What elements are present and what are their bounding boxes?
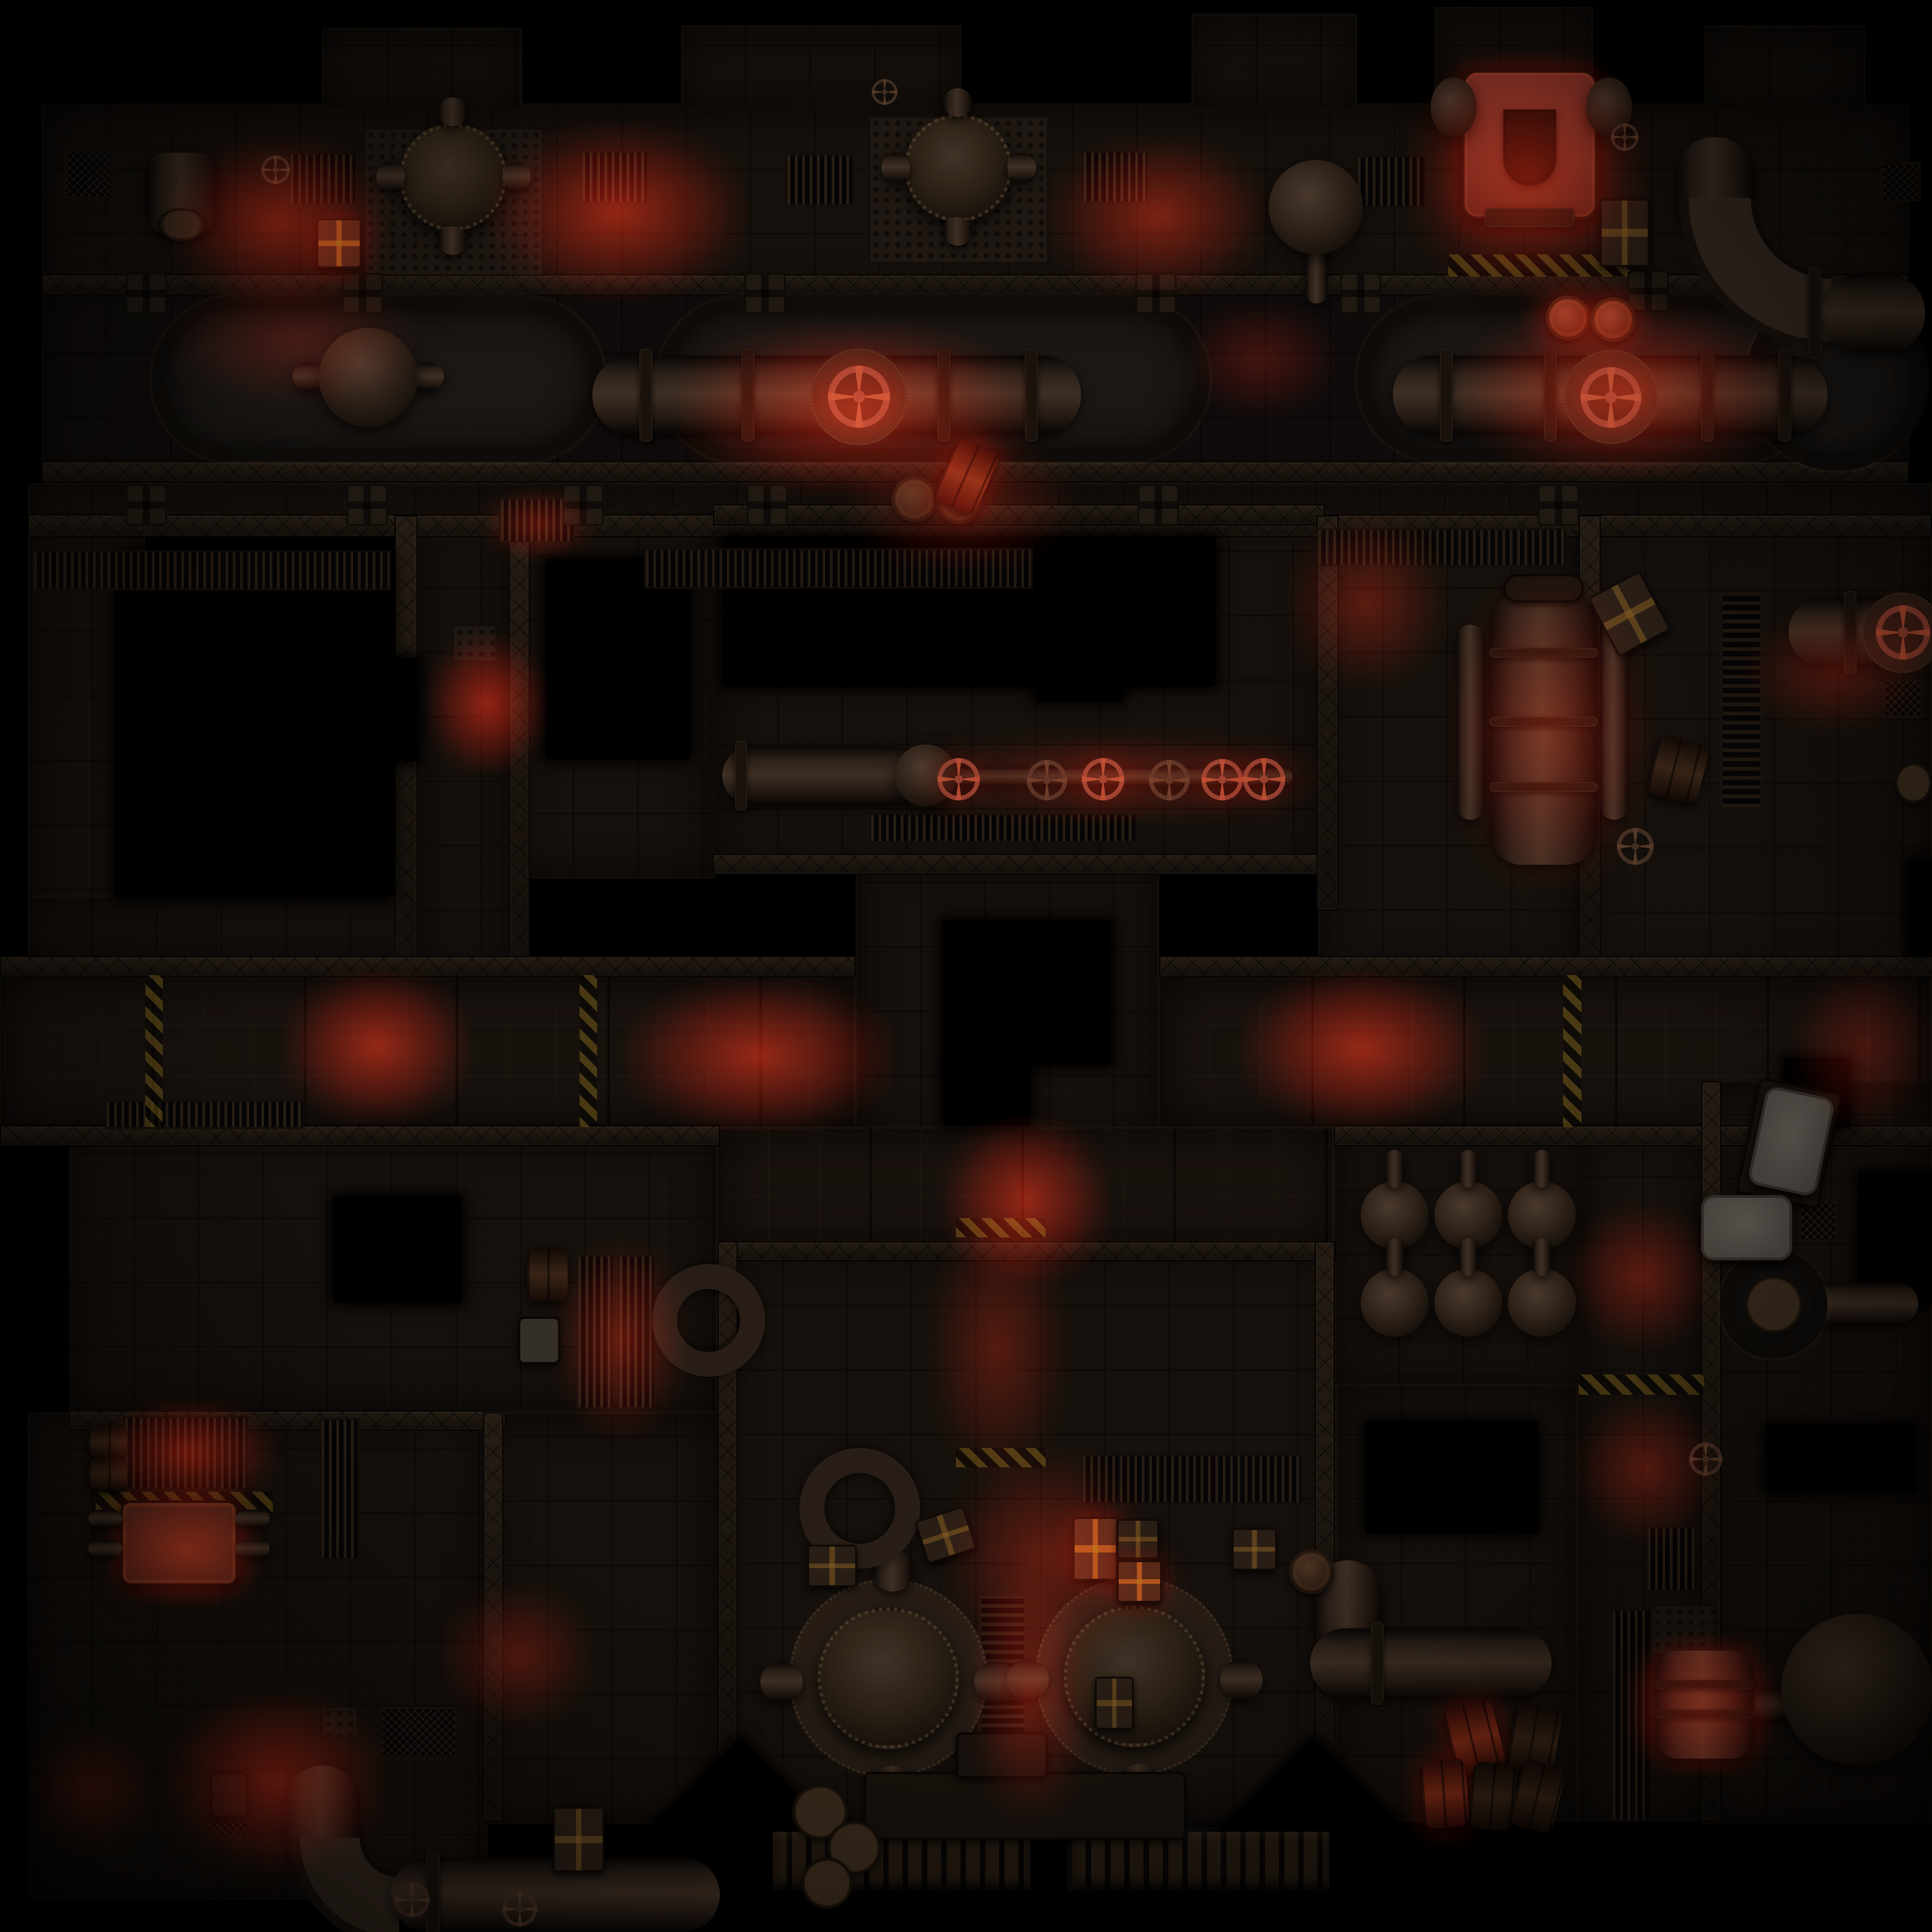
condenser-neck-6 [1533,1238,1551,1276]
dome2-stub-top [943,88,972,117]
dome1-stub-left [376,162,405,191]
crate-hall-east [1232,1528,1277,1570]
pit-leftwing [333,1196,461,1303]
flange-mid-3 [937,349,950,442]
canister-lid [158,208,206,241]
condenser-bulb-6 [1508,1269,1576,1337]
flange-bl [426,1850,440,1932]
wheel-boiler-floor [1617,828,1654,865]
hazard-right-corridor [1579,1374,1704,1395]
wheel-top-2 [872,79,897,105]
flange-mid-1 [639,349,652,442]
barrel-red-pool-2 [1591,297,1636,342]
radiator-leftwing-1 [576,1255,614,1409]
pillar-plus-5 [1340,273,1381,314]
crate-midlow [553,1807,604,1872]
dome1-stub-top [438,98,467,126]
barrel-leftwing-1 [88,1425,127,1458]
pit-condenser-south [1366,1420,1537,1533]
hopper-notch [1503,109,1556,185]
wall-corr-n-left [0,956,856,977]
valve-wheel-mid [828,366,890,428]
wheel-row-4 [1149,760,1190,800]
mosaic-corridor [452,625,497,662]
vent-top-4 [1082,151,1149,203]
bl-elbow [284,1838,399,1932]
flange-right-1 [1440,349,1453,442]
wheel-row-6 [1243,758,1285,800]
radiator-left [123,1416,248,1490]
condenser-neck-3 [1533,1150,1551,1188]
pump-band-2 [1655,1709,1754,1719]
pillar-plus-3 [744,273,786,314]
condenser-bulb-5 [1434,1269,1502,1337]
wall-boiler-west [1317,515,1339,911]
tw-stub-w [760,1662,803,1702]
pillar-plus-8 [346,484,388,526]
pit-right-low [1766,1425,1915,1492]
vent-top-1 [289,153,357,205]
mesh-bl-room [381,1708,457,1759]
crate-red-topleft [316,218,362,268]
manifold-comb [1081,1455,1303,1504]
te-stub-e [1220,1660,1263,1700]
crate-hall-2 [807,1545,857,1587]
pump-red [1655,1650,1754,1759]
pillar-plus-11 [1138,484,1179,526]
wheel-top-3 [1611,123,1639,151]
wheel-row-5 [1202,759,1243,800]
dome1-stub-right [502,162,531,191]
wheel-bl-2 [502,1892,537,1926]
vent-top-5 [1356,155,1426,208]
wall-corridor-east [509,515,530,975]
floor-top-prot-3 [1191,14,1357,110]
wall-center-room-south [713,854,1327,875]
condenser-neck-4 [1386,1238,1404,1276]
crate-hall-6 [1095,1677,1134,1730]
door-mat-leftwing [518,1317,560,1364]
wall-hall-north [718,1241,1336,1261]
wheel-top-1 [261,155,290,184]
pillar-plus-6 [1627,270,1669,312]
pit-right-edge [1908,859,1932,954]
flange-upipe [1371,1622,1384,1705]
vent-top-2 [581,151,649,203]
mattress-2 [1701,1195,1792,1260]
hatch-pipe-4 [236,1540,270,1558]
floor-top-prot-5 [1704,25,1865,110]
condenser-neck-5 [1459,1238,1478,1276]
chair-bottomleft [210,1772,248,1818]
dome1-stub-bottom [438,226,467,255]
te-stub-w [1006,1660,1049,1700]
vent-rb-2 [1611,1609,1651,1822]
vent-band-left [32,550,391,591]
boiler-cap [1503,574,1584,603]
crate-hall-4 [1117,1519,1159,1559]
wall-midlow-west [483,1412,503,1822]
flange-mid-4 [1025,349,1038,442]
flange-topright [1808,267,1822,359]
valve-wheel-elbow [1876,605,1930,660]
pit-center-ext [1037,616,1122,701]
flange-right-4 [1778,349,1791,442]
pillar-plus-2 [342,273,383,314]
t-platform [864,1772,1186,1840]
barrel-pile-4 [1468,1761,1518,1832]
barrel-red-pool-1 [1546,295,1591,340]
vent-band-right [1317,528,1567,567]
floor-mid-low [483,1412,720,1824]
valve-wheel-right [1581,367,1641,428]
crate-hall-3 [1073,1517,1118,1581]
grate-right-mid [1720,592,1763,810]
sphere-pool [319,328,418,427]
boiler-band-2 [1489,717,1598,727]
pipe-topright-horiz [1822,274,1925,353]
wall-hall-east [1315,1241,1335,1821]
sphere-top-band [1269,160,1363,254]
dome2-stub-right [1007,153,1036,182]
coin-plate [1895,762,1932,804]
barrel-leftwing-3 [527,1248,568,1302]
boiler-body [1489,592,1598,865]
sphere-tank-big [1781,1614,1932,1765]
barrel-hall [1289,1549,1334,1594]
wheel-row-1 [937,758,980,800]
wheel-bl-1 [395,1882,430,1917]
hopper-base [1485,208,1575,227]
wall-corr-n-right [1159,956,1932,977]
furnace-hatch [121,1501,238,1586]
boiler-band-3 [1489,782,1598,792]
mosaic-bl [321,1706,359,1737]
palisade-right [1072,1832,1329,1891]
flange-right-3 [1701,349,1714,442]
pipe-sphere-drop [1305,246,1328,304]
vent-strip-left [320,1418,359,1560]
flange-midright [1844,591,1857,674]
crate-topright [1600,199,1650,267]
barrel-lid-mid-1 [891,476,937,522]
vent-center-room [869,813,1137,843]
wheel-row-2 [1027,760,1067,800]
mesh-topright [1880,162,1921,201]
mosaic-rb [1650,1604,1716,1656]
condenser-neck-2 [1459,1150,1478,1188]
manhole-lid-3 [801,1857,853,1909]
hazard-pillar-1 [145,975,163,1127]
dome-valve-2 [904,114,1012,222]
pit-midleft-notch [390,658,418,761]
hazard-tee-south [956,1448,1046,1467]
wheel-right-corridor [1689,1443,1722,1476]
pillar-plus-4 [1135,273,1177,314]
hatch-pipe-2 [88,1540,122,1558]
floor-mid-corridor [416,515,511,975]
flange-right-2 [1544,349,1557,442]
pillar-plus-10 [747,484,788,526]
barrel-pile-3 [1420,1758,1470,1829]
hazard-pillar-3 [1563,975,1581,1127]
hatch-pipe-3 [236,1510,270,1527]
pit-room-midleft [545,559,690,759]
wall-center-room-north [713,504,1325,525]
pillar-plus-9 [563,484,604,526]
condenser-neck-1 [1386,1150,1404,1188]
radiator-leftwing-2 [618,1255,655,1409]
vent-band-mid [644,548,1033,589]
boiler-band-1 [1489,648,1598,658]
hatch-pipe-1 [88,1510,122,1527]
pump-band-1 [1655,1680,1754,1689]
flange-mid-2 [742,349,754,442]
floor-top-prot-2 [681,25,961,110]
mesh-elbow-room [1883,680,1923,718]
boiler-loop-left [1456,625,1485,820]
barrel-leftwing-2 [88,1457,127,1490]
wall-corr-s-right [1334,1125,1932,1146]
pillar-plus-12 [1538,484,1579,526]
dome2-stub-left [881,153,910,182]
vent-rb-1 [1646,1526,1697,1592]
dome2-stub-bottom [943,217,972,246]
pit-center-lower-leg [943,1063,1030,1125]
hazard-pillar-2 [580,975,597,1127]
stair-treads-left [105,1100,305,1129]
torus-leftwing [652,1264,765,1377]
tank-horizontal [722,746,918,805]
mesh-topleft [64,151,114,198]
crate-hall-5 [1117,1560,1162,1603]
pit-center-lower [943,920,1111,1065]
turbine-west-dome [817,1607,959,1749]
hopper-horn-left [1431,77,1477,137]
hazard-tee-north [956,1218,1046,1237]
pillar-plus-1 [126,273,167,314]
flange-tank [735,741,747,811]
upipe-horiz [1310,1628,1552,1698]
wheel-row-3 [1082,758,1124,800]
turbine-east-dome [1064,1605,1205,1747]
battlemap-canvas[interactable] [0,0,1932,1932]
pillar-plus-7 [126,484,167,526]
dome-valve-1 [399,123,507,231]
vent-top-3 [786,154,854,206]
t-platform-stem [956,1732,1048,1778]
round-vat-lid [1744,1275,1803,1334]
condenser-bulb-4 [1361,1269,1429,1337]
floor-top-prot-1 [322,28,522,110]
pit-midleft-large [115,554,391,897]
